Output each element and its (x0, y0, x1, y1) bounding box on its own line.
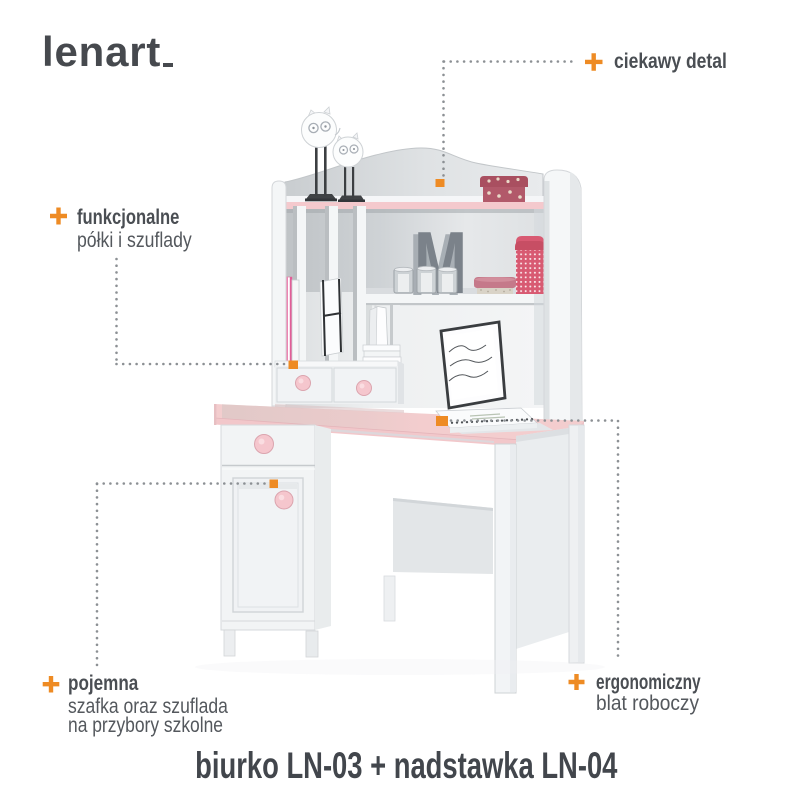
svg-text:M: M (414, 213, 467, 312)
